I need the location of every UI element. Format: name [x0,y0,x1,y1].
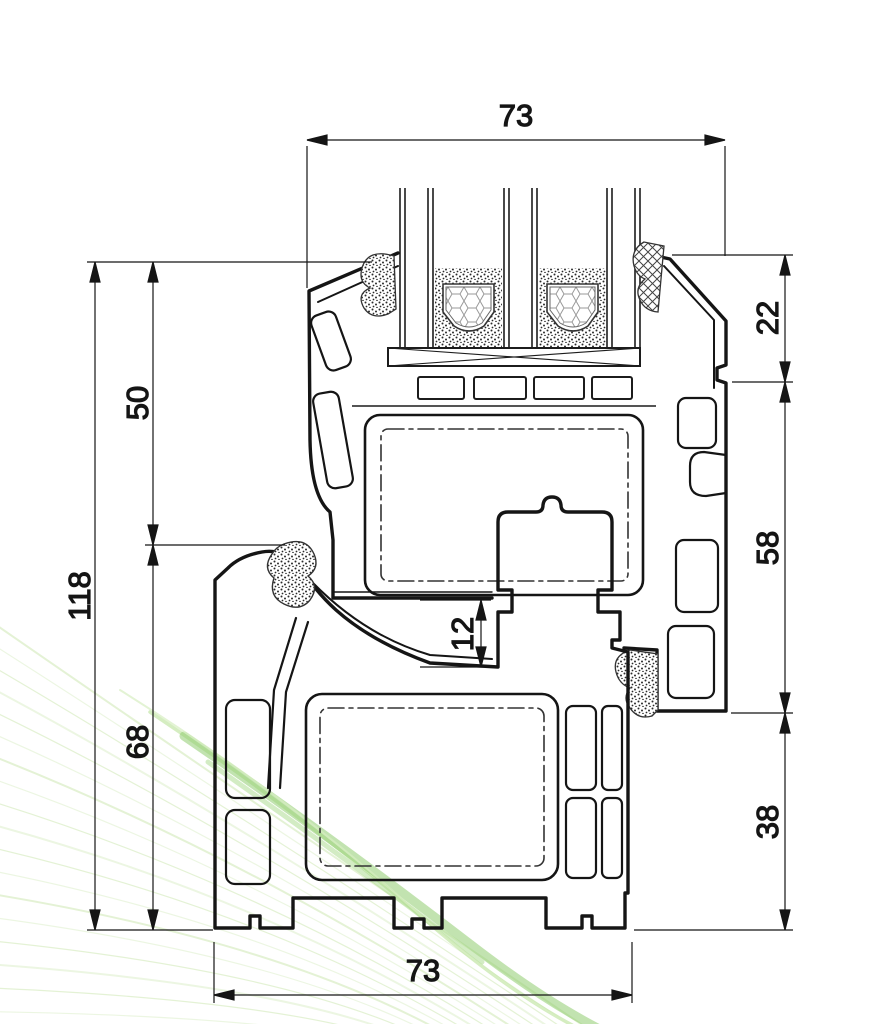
sash-profile [309,253,726,711]
dim-label-top-width: 73 [499,98,533,133]
sash-steel-reinforcement [381,429,628,581]
weather-gasket-right [615,650,658,717]
dimension-frame-face: 38 [634,713,793,930]
glazing-spacer-2 [539,268,606,350]
glazing-unit [352,188,656,406]
glass-pane-1 [400,188,433,350]
drawing-canvas: 73 118 50 68 [0,0,870,1024]
dim-label-bottom-width: 73 [406,953,440,988]
dim-label-sash-face: 58 [750,531,785,565]
dim-label-sash-stack: 50 [120,386,155,420]
dimension-glazing-bead: 22 [672,255,793,382]
dim-label-total-height: 118 [62,571,97,620]
weather-gasket-left [267,542,316,608]
dim-label-frame-height: 68 [120,725,155,759]
glazing-gasket-left [361,254,396,316]
dimension-bottom-width: 73 [214,942,632,1003]
glazing-bridge [352,348,656,406]
glazing-gasket-right [633,242,664,312]
dimension-frame-height: 68 [120,545,158,930]
glazing-spacer-1 [435,268,502,350]
profile-cross-section-drawing: 73 118 50 68 [0,0,870,1024]
dim-label-rebate-gap: 12 [445,617,480,651]
dim-label-glazing-bead: 22 [750,301,785,335]
dimension-sash-stack: 50 [120,262,285,545]
dim-label-frame-face: 38 [750,805,785,839]
dimension-sash-face: 58 [731,382,793,713]
frame-steel-reinforcement [320,708,544,866]
glass-pane-2 [504,188,537,350]
